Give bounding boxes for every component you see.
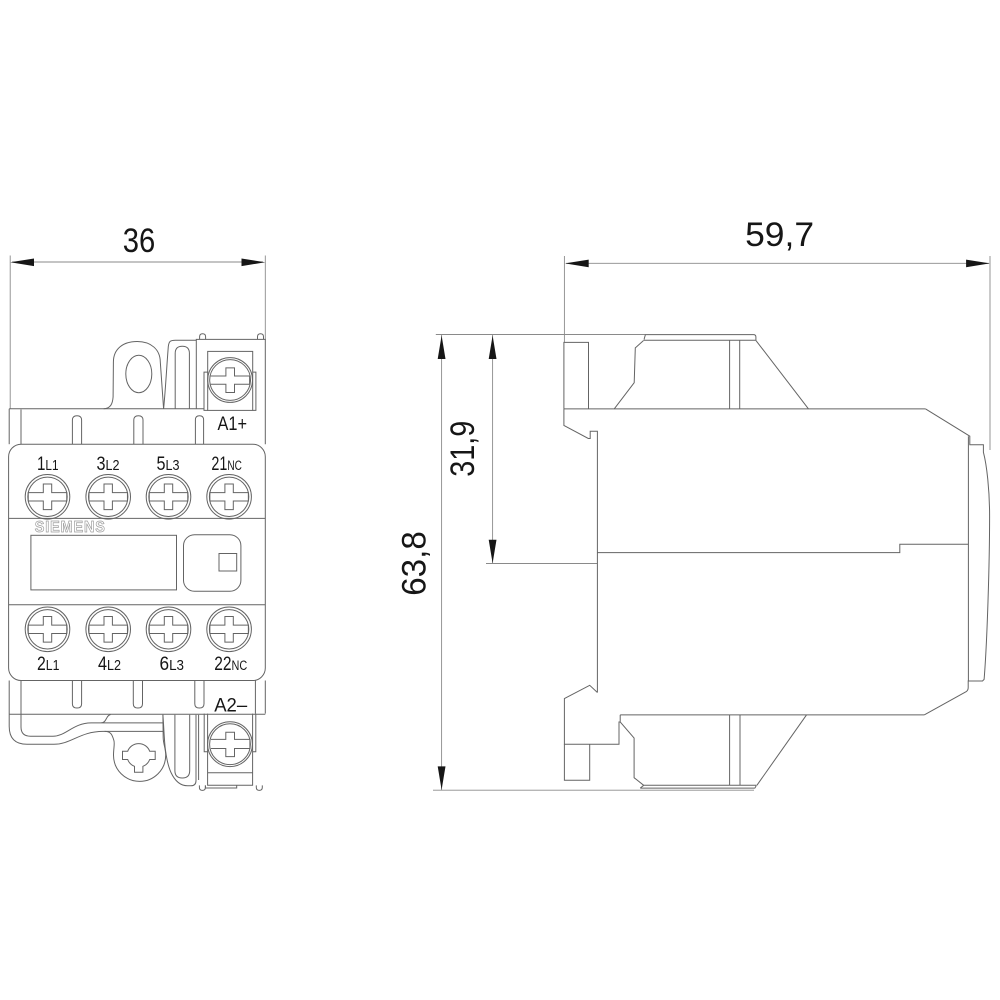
svg-text:31,9: 31,9 [444, 421, 482, 477]
svg-text:6L3: 6L3 [160, 654, 185, 675]
svg-text:22NC: 22NC [214, 654, 247, 675]
svg-text:4L2: 4L2 [98, 654, 121, 675]
svg-text:21NC: 21NC [211, 454, 242, 475]
svg-text:5L3: 5L3 [157, 454, 180, 475]
svg-text:36: 36 [123, 222, 156, 260]
svg-text:A2–: A2– [214, 695, 247, 717]
svg-text:A1+: A1+ [218, 413, 248, 435]
svg-text:59,7: 59,7 [745, 216, 814, 254]
svg-text:3L2: 3L2 [97, 454, 120, 475]
svg-text:SIEMENS: SIEMENS [35, 519, 106, 536]
svg-text:2L1: 2L1 [37, 654, 60, 675]
svg-text:63,8: 63,8 [396, 531, 434, 596]
svg-text:1L1: 1L1 [37, 454, 58, 475]
